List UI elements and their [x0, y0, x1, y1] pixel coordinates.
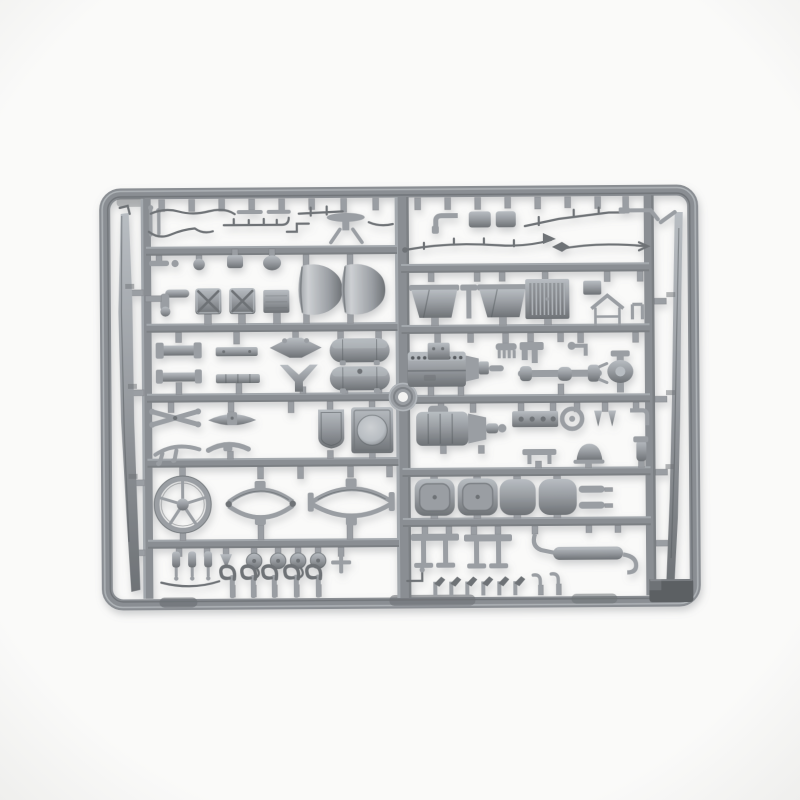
dark-plate-part — [649, 579, 693, 602]
sprue-photo — [0, 0, 800, 800]
radiator-part — [525, 279, 569, 319]
headlight-panel-part — [351, 407, 393, 453]
shield-panel-part — [318, 409, 344, 448]
air-scoop-parts — [409, 284, 527, 319]
product-photo — [0, 0, 800, 800]
toolbox-parts — [195, 288, 289, 315]
